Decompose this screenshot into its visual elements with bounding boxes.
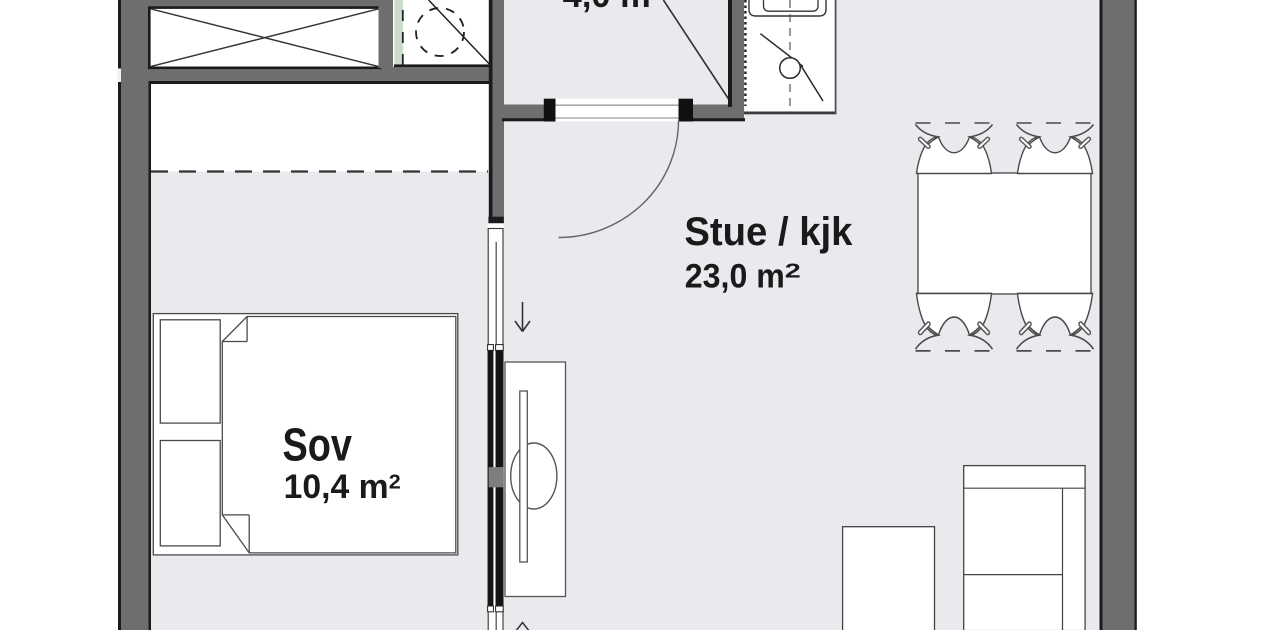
svg-text:2: 2: [785, 260, 801, 283]
svg-text:Stue / kjk: Stue / kjk: [684, 210, 853, 254]
svg-text:2: 2: [389, 471, 401, 494]
svg-text:10,4 m: 10,4 m: [284, 468, 389, 506]
svg-text:4,0 m: 4,0 m: [563, 0, 651, 15]
svg-text:Sov: Sov: [283, 418, 353, 470]
svg-text:23,0 m: 23,0 m: [685, 258, 785, 296]
